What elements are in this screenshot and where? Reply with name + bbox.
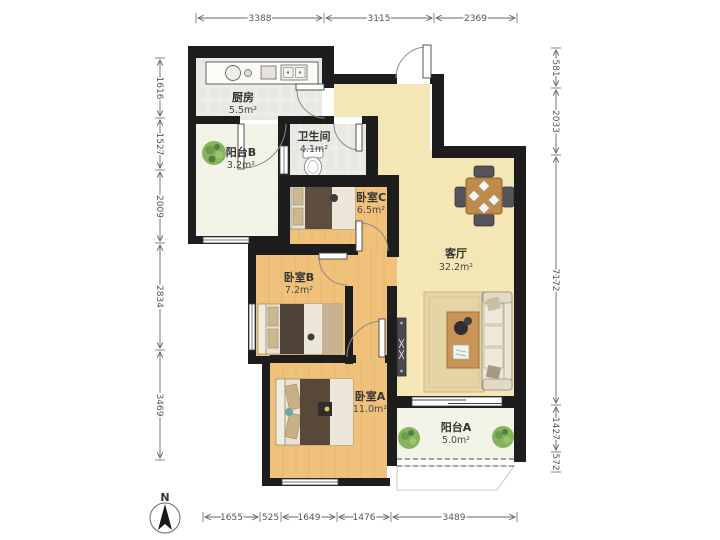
dining-chair-bottom xyxy=(474,214,494,226)
dimension-segment: 2009 xyxy=(154,172,164,241)
dimension-right: 581203371721427572 xyxy=(550,48,561,472)
balcony-a-name: 阳台A xyxy=(441,420,472,434)
dimension-value: 1655 xyxy=(220,513,243,523)
dimension-segment: 1476 xyxy=(339,513,389,523)
dimension-value: 581 xyxy=(550,59,560,76)
wall-segment xyxy=(278,175,392,187)
dimension-segment: 3469 xyxy=(154,352,164,458)
stove-icon xyxy=(261,66,276,79)
wall-segment xyxy=(345,286,353,364)
label-bedroom-b: 卧室B 7.2m² xyxy=(284,270,314,296)
dimension-segment: 2834 xyxy=(154,245,164,348)
bedroom-a-name: 卧室A xyxy=(355,389,386,403)
floor-plan: 厨房 5.5m² 阳台B 3.2m² 卫生间 4.1m² 卧室C 6.5m² 卧… xyxy=(0,0,720,540)
dimension-value: 1476 xyxy=(353,513,376,523)
wall-segment xyxy=(262,356,270,486)
compass-north-label: N xyxy=(160,491,169,504)
dimension-segment: 3115 xyxy=(326,14,432,24)
kitchen-counter xyxy=(206,62,318,84)
plant-balcony-b xyxy=(202,141,226,165)
sofa xyxy=(482,292,512,390)
window-balcony-b xyxy=(203,237,249,243)
window-bedroom-b xyxy=(249,304,255,350)
dimension-value: 2033 xyxy=(550,110,560,133)
balcony-b-name: 阳台B xyxy=(226,145,256,159)
wall-segment xyxy=(188,46,334,58)
dimension-segment: 1655 xyxy=(205,513,258,523)
bedroom-b-name: 卧室B xyxy=(284,270,314,284)
wall-segment xyxy=(334,74,397,84)
wall-segment xyxy=(387,175,399,257)
plant-balcony-a-right xyxy=(492,426,514,448)
sink-icon xyxy=(226,66,241,81)
bed-a xyxy=(276,379,353,445)
wall-segment xyxy=(188,46,196,244)
sliding-door-balcony-a xyxy=(412,397,502,406)
balcony-a-area: 5.0m² xyxy=(442,435,470,446)
dimension-segment: 525 xyxy=(262,513,279,523)
entry-door xyxy=(396,45,431,78)
dimension-value: 1427 xyxy=(550,417,560,440)
coffee-table xyxy=(447,312,479,368)
wall-segment xyxy=(196,116,240,124)
bathroom-name: 卫生间 xyxy=(298,129,331,143)
label-bathroom: 卫生间 4.1m² xyxy=(298,129,331,155)
label-balcony-a: 阳台A 5.0m² xyxy=(441,420,472,446)
faucet-icon xyxy=(245,70,252,77)
bedroom-c-name: 卧室C xyxy=(356,190,386,204)
wall-segment xyxy=(432,74,444,152)
dimension-segment: 3489 xyxy=(393,513,515,523)
bedroom-b-area: 7.2m² xyxy=(285,285,313,296)
living-name: 客厅 xyxy=(444,246,467,260)
bedroom-a-area: 11.0m² xyxy=(353,404,387,415)
wall-segment xyxy=(387,286,397,466)
dimension-segment: 2033 xyxy=(550,90,560,153)
balcony-a-outside xyxy=(397,466,514,490)
dimension-segment: 3388 xyxy=(198,14,322,24)
dimension-value: 572 xyxy=(550,453,560,470)
wall-segment xyxy=(290,116,334,124)
wall-segment xyxy=(322,46,334,88)
bathroom-area: 4.1m² xyxy=(300,144,328,155)
dining-chair-left xyxy=(455,187,466,207)
floor-plan-page: 厨房 5.5m² 阳台B 3.2m² 卫生间 4.1m² 卧室C 6.5m² 卧… xyxy=(0,0,720,540)
label-bedroom-a: 卧室A 11.0m² xyxy=(353,389,387,415)
label-kitchen: 厨房 5.5m² xyxy=(229,90,257,116)
dimension-bottom: 1655525164914763489 xyxy=(203,512,517,523)
window-bathroom xyxy=(280,146,288,174)
dimension-value: 2834 xyxy=(154,285,164,308)
living-area: 32.2m² xyxy=(439,262,473,273)
dimension-segment: 572 xyxy=(550,453,560,470)
wall-segment xyxy=(514,146,526,462)
dimension-segment: 581 xyxy=(550,50,560,86)
kitchen-area: 5.5m² xyxy=(229,105,257,116)
plant-balcony-a-left xyxy=(398,427,420,449)
bed-b xyxy=(258,304,342,354)
label-balcony-b: 阳台B 3.2m² xyxy=(226,145,256,171)
dimension-value: 3469 xyxy=(154,394,164,417)
dimension-value: 1649 xyxy=(298,513,321,523)
dimension-left: 16161527200928343469 xyxy=(154,58,165,460)
dining-chair-top xyxy=(474,166,494,177)
dimension-top: 338831152369 xyxy=(196,13,517,24)
dimension-segment: 1649 xyxy=(283,513,335,523)
dimension-segment: 2369 xyxy=(436,14,515,24)
wall-segment xyxy=(366,116,378,180)
dimension-value: 3489 xyxy=(443,513,466,523)
dimension-value: 3388 xyxy=(249,14,272,24)
bedroom-c-area: 6.5m² xyxy=(357,205,385,216)
window-bedroom-a xyxy=(282,479,338,485)
balcony-b-area: 3.2m² xyxy=(227,160,255,171)
balcony-a-railing xyxy=(397,459,514,466)
kitchen-name: 厨房 xyxy=(232,90,254,104)
bed-c xyxy=(283,185,355,229)
wall-segment xyxy=(432,146,524,158)
wall-segment xyxy=(390,247,399,255)
north-arrow-icon xyxy=(158,504,172,530)
dimension-value: 1527 xyxy=(154,133,164,156)
dining-chair-right xyxy=(502,187,514,207)
dimension-segment: 1616 xyxy=(154,60,164,116)
wall-segment xyxy=(270,355,356,363)
compass: N xyxy=(150,491,180,533)
dimension-value: 2369 xyxy=(464,14,487,24)
dimension-value: 2009 xyxy=(154,195,164,218)
dimension-value: 525 xyxy=(262,513,279,523)
table-papers xyxy=(453,345,469,359)
dimension-segment: 7172 xyxy=(550,157,560,403)
dimension-value: 1616 xyxy=(154,77,164,100)
dimension-value: 3115 xyxy=(368,14,391,24)
dimension-segment: 1527 xyxy=(154,120,164,168)
label-bedroom-c: 卧室C 6.5m² xyxy=(356,190,386,216)
dimension-segment: 1427 xyxy=(550,407,560,450)
dimension-value: 7172 xyxy=(550,269,560,292)
tv-cabinet xyxy=(397,318,406,376)
